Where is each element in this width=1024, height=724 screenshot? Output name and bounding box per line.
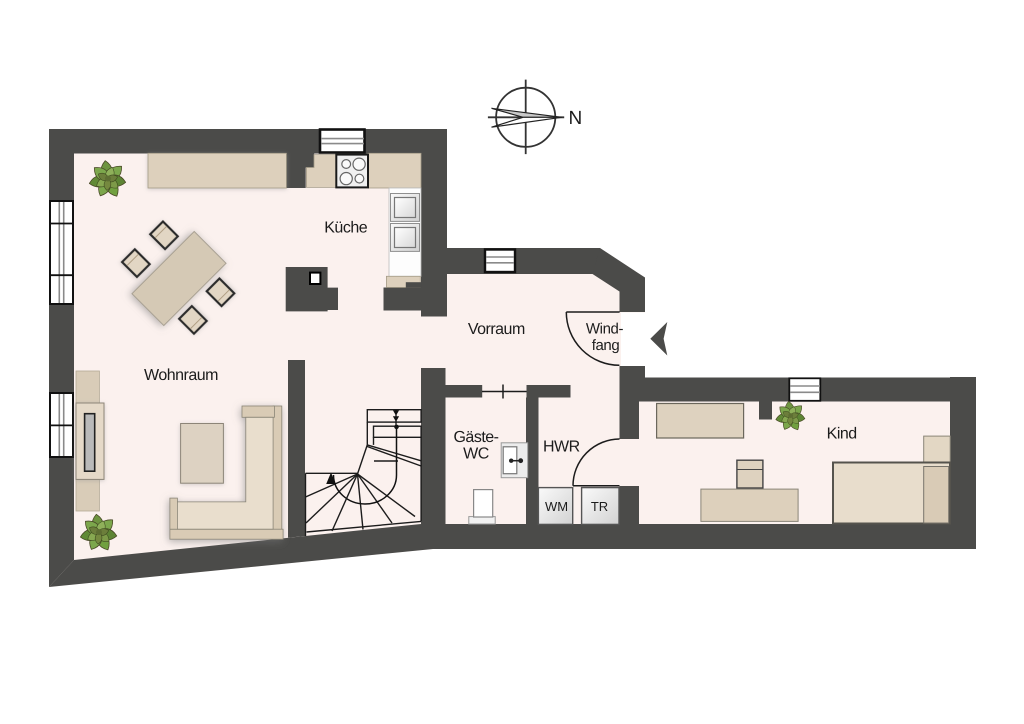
- svg-text:fang: fang: [592, 337, 620, 354]
- svg-text:Gäste-: Gäste-: [453, 429, 498, 446]
- svg-text:Küche: Küche: [324, 219, 367, 236]
- svg-text:Kind: Kind: [827, 426, 857, 443]
- svg-text:N: N: [569, 108, 583, 129]
- svg-text:Wohnraum: Wohnraum: [144, 367, 218, 384]
- svg-text:WM: WM: [545, 499, 568, 514]
- svg-text:TR: TR: [591, 499, 608, 514]
- svg-text:Wind-: Wind-: [586, 320, 624, 337]
- svg-text:Vorraum: Vorraum: [468, 321, 525, 338]
- svg-text:WC: WC: [463, 446, 489, 463]
- svg-text:HWR: HWR: [543, 439, 580, 456]
